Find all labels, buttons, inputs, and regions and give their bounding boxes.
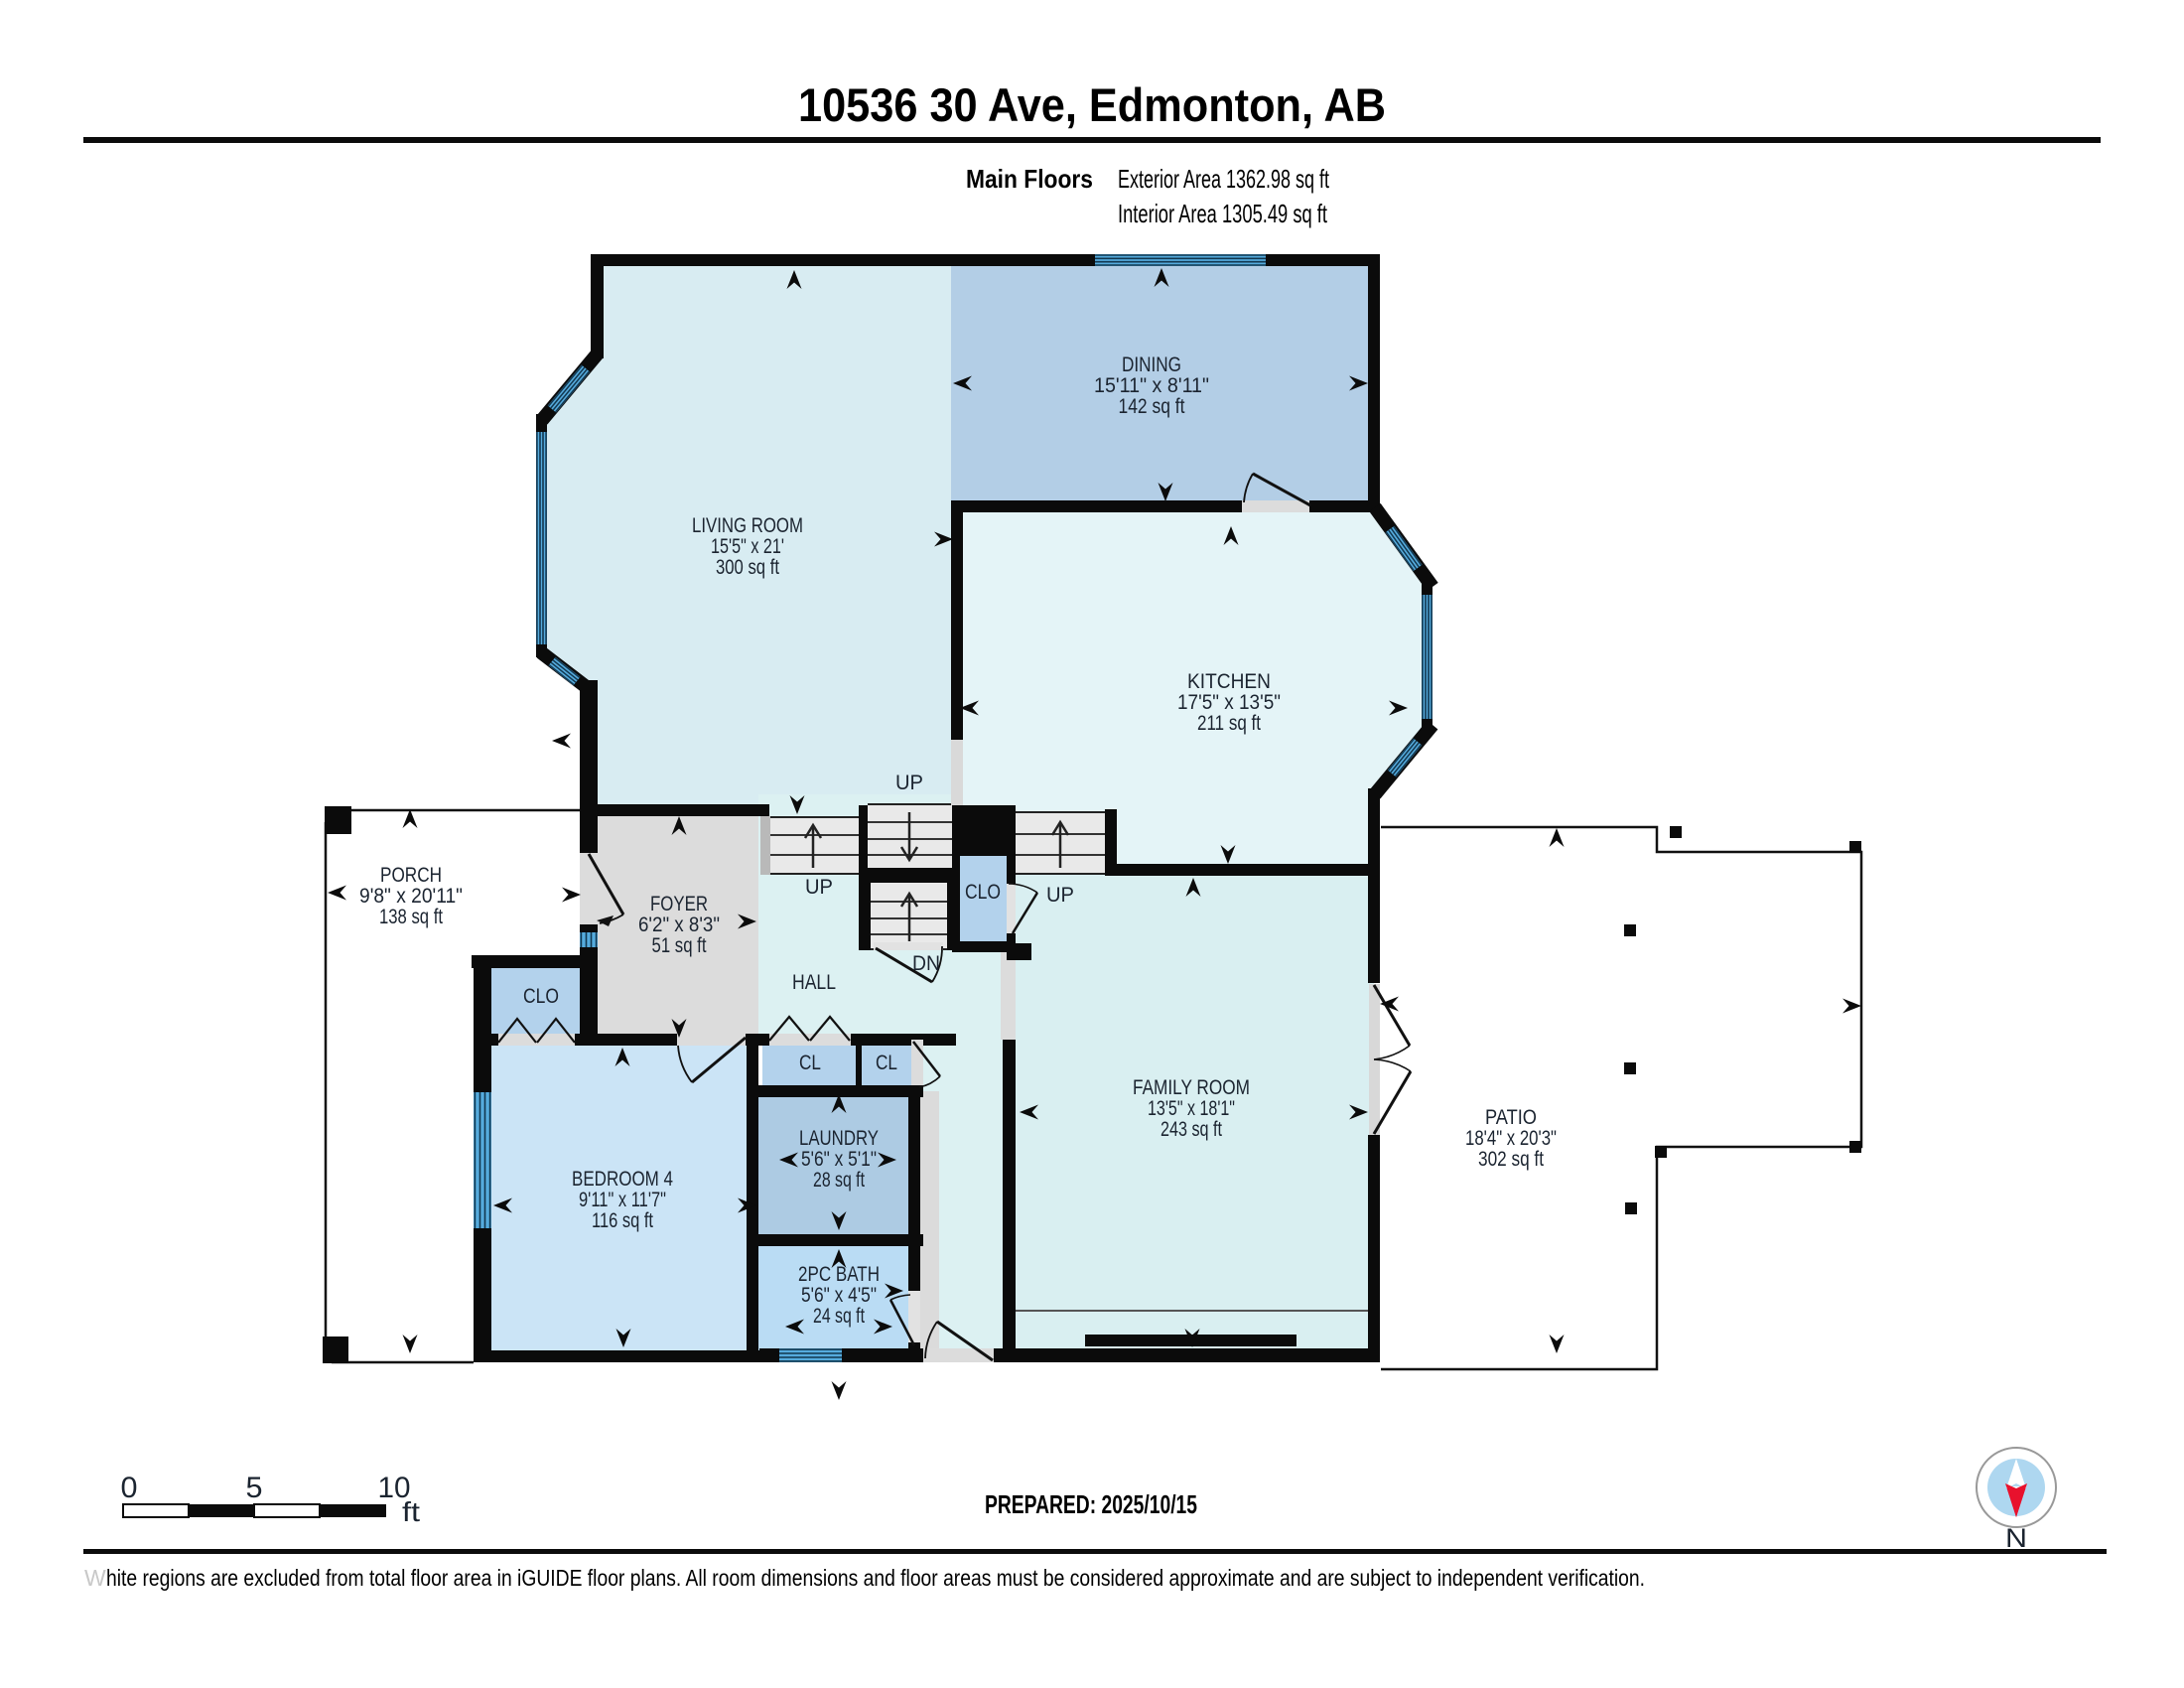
svg-text:FOYER: FOYER — [650, 893, 708, 915]
svg-text:KITCHEN: KITCHEN — [1187, 670, 1271, 693]
svg-text:LAUNDRY: LAUNDRY — [799, 1127, 879, 1150]
svg-text:138 sq ft: 138 sq ft — [379, 906, 443, 928]
svg-text:DINING: DINING — [1122, 353, 1181, 376]
svg-text:116 sq ft: 116 sq ft — [592, 1209, 653, 1232]
svg-text:DN: DN — [912, 952, 940, 975]
svg-text:CL: CL — [799, 1052, 821, 1074]
svg-text:302 sq ft: 302 sq ft — [1478, 1148, 1544, 1171]
svg-text:300 sq ft: 300 sq ft — [716, 556, 779, 579]
svg-text:CLO: CLO — [523, 985, 559, 1008]
svg-text:6'2" x 8'3": 6'2" x 8'3" — [638, 914, 720, 936]
svg-text:N: N — [2005, 1523, 2027, 1553]
svg-text:24 sq ft: 24 sq ft — [813, 1305, 865, 1328]
svg-text:10536 30 Ave, Edmonton, AB: 10536 30 Ave, Edmonton, AB — [798, 78, 1386, 131]
svg-text:PREPARED: 2025/10/15: PREPARED: 2025/10/15 — [985, 1489, 1197, 1519]
svg-text:5'6" x 4'5": 5'6" x 4'5" — [801, 1284, 877, 1307]
svg-text:Main Floors: Main Floors — [966, 164, 1093, 194]
svg-text:UP: UP — [805, 876, 833, 899]
svg-text:17'5" x 13'5": 17'5" x 13'5" — [1177, 691, 1281, 714]
svg-text:PORCH: PORCH — [380, 864, 442, 887]
svg-text:Exterior Area 1362.98 sq ft: Exterior Area 1362.98 sq ft — [1118, 164, 1330, 194]
svg-text:243 sq ft: 243 sq ft — [1160, 1118, 1222, 1141]
svg-text:Interior Area 1305.49 sq ft: Interior Area 1305.49 sq ft — [1118, 199, 1328, 228]
svg-text:ft: ft — [402, 1496, 420, 1527]
svg-text:LIVING ROOM: LIVING ROOM — [692, 514, 803, 537]
svg-text:51 sq ft: 51 sq ft — [652, 934, 707, 957]
svg-text:FAMILY ROOM: FAMILY ROOM — [1133, 1076, 1250, 1099]
svg-text:BEDROOM 4: BEDROOM 4 — [572, 1168, 673, 1191]
svg-text:2PC BATH: 2PC BATH — [798, 1263, 880, 1286]
svg-text:9'8" x 20'11": 9'8" x 20'11" — [359, 885, 463, 908]
svg-text:UP: UP — [895, 772, 923, 794]
svg-text:PATIO: PATIO — [1485, 1106, 1537, 1129]
svg-text:13'5" x 18'1": 13'5" x 18'1" — [1148, 1097, 1235, 1120]
svg-text:hite regions are excluded from: hite regions are excluded from total flo… — [106, 1565, 1645, 1591]
svg-text:5'6" x 5'1": 5'6" x 5'1" — [801, 1148, 877, 1171]
svg-text:CLO: CLO — [965, 881, 1001, 904]
svg-text:211 sq ft: 211 sq ft — [1197, 712, 1261, 735]
svg-text:W: W — [84, 1565, 106, 1591]
svg-text:15'11" x 8'11": 15'11" x 8'11" — [1094, 374, 1209, 397]
svg-text:0: 0 — [121, 1472, 138, 1504]
svg-text:18'4" x 20'3": 18'4" x 20'3" — [1465, 1127, 1557, 1150]
svg-text:28 sq ft: 28 sq ft — [813, 1169, 865, 1192]
svg-text:9'11" x 11'7": 9'11" x 11'7" — [579, 1189, 666, 1211]
svg-text:CL: CL — [876, 1052, 897, 1074]
svg-text:HALL: HALL — [792, 971, 836, 994]
svg-text:5: 5 — [246, 1472, 263, 1504]
svg-text:15'5" x 21': 15'5" x 21' — [711, 535, 784, 558]
svg-text:UP: UP — [1046, 884, 1074, 907]
svg-text:142 sq ft: 142 sq ft — [1119, 395, 1185, 418]
